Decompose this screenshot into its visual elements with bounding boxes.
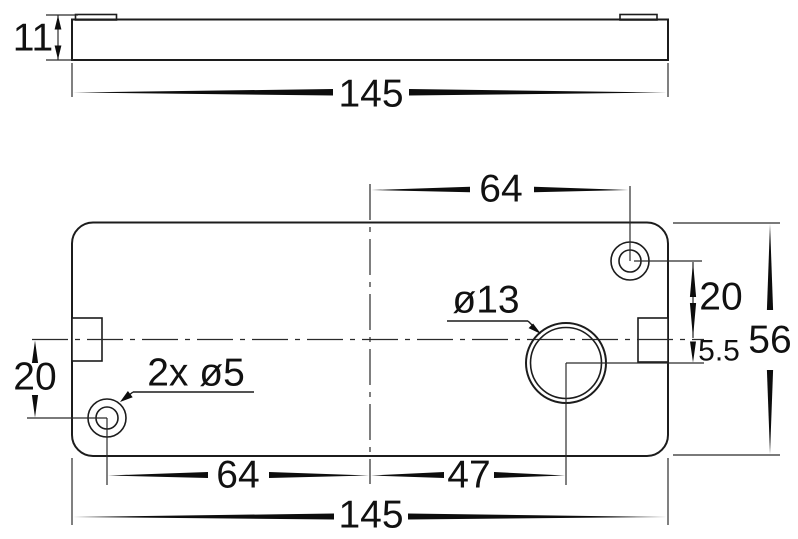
arrowhead-up bbox=[55, 16, 62, 30]
dim-11: 11 bbox=[13, 15, 78, 60]
dim-5-5-label: 5.5 bbox=[698, 335, 740, 368]
dim-64-bottom-label: 64 bbox=[216, 454, 259, 497]
dim-145-top: 145 bbox=[72, 63, 668, 116]
small-holes-label: 2x ø5 bbox=[147, 352, 245, 395]
arrowhead-up bbox=[767, 224, 773, 310]
arrowhead-left bbox=[73, 514, 334, 520]
arrowhead-left bbox=[108, 472, 208, 478]
dim-145-bottom-label: 145 bbox=[338, 494, 403, 537]
arrowhead-right bbox=[409, 89, 667, 96]
leader-arrowhead bbox=[120, 391, 133, 402]
arrowhead-down bbox=[55, 46, 62, 60]
dim-145-top-label: 145 bbox=[338, 73, 403, 116]
large-hole-label: ø13 bbox=[452, 279, 519, 322]
arrowhead-left bbox=[73, 89, 333, 96]
arrowhead-up bbox=[690, 262, 696, 297]
dim-11-label: 11 bbox=[13, 17, 54, 60]
arrowhead-down bbox=[690, 303, 696, 338]
arrowhead-left bbox=[372, 187, 471, 193]
dim-145-bottom: 145 bbox=[73, 494, 667, 537]
arrowhead-right bbox=[534, 187, 629, 193]
dim-64-top-label: 64 bbox=[479, 168, 522, 211]
dim-47: 47 bbox=[371, 454, 565, 497]
dim-20-right-label: 20 bbox=[699, 276, 742, 319]
dim-47-label: 47 bbox=[447, 454, 490, 497]
dim-64-bottom: 64 bbox=[108, 454, 369, 497]
arrowhead-right bbox=[269, 472, 369, 478]
arrowhead-down bbox=[690, 342, 696, 363]
side-view-outline bbox=[72, 20, 668, 61]
arrowhead-right bbox=[408, 514, 667, 520]
arrowhead-left bbox=[371, 472, 444, 478]
technical-drawing-canvas: 11 145 64 20 bbox=[0, 0, 798, 539]
side-view bbox=[72, 15, 668, 61]
dim-56-label: 56 bbox=[748, 319, 791, 362]
leader-arrowhead bbox=[529, 324, 541, 335]
label-small-holes: 2x ø5 bbox=[120, 352, 254, 403]
dim-64-top: 64 bbox=[372, 168, 631, 262]
label-large-hole: ø13 bbox=[447, 279, 541, 335]
plan-view bbox=[32, 184, 704, 484]
technical-drawing-page: 11 145 64 20 bbox=[0, 0, 798, 539]
arrowhead-down bbox=[767, 370, 773, 454]
arrowhead-right bbox=[494, 472, 565, 478]
dim-20-left-label: 20 bbox=[13, 356, 56, 399]
